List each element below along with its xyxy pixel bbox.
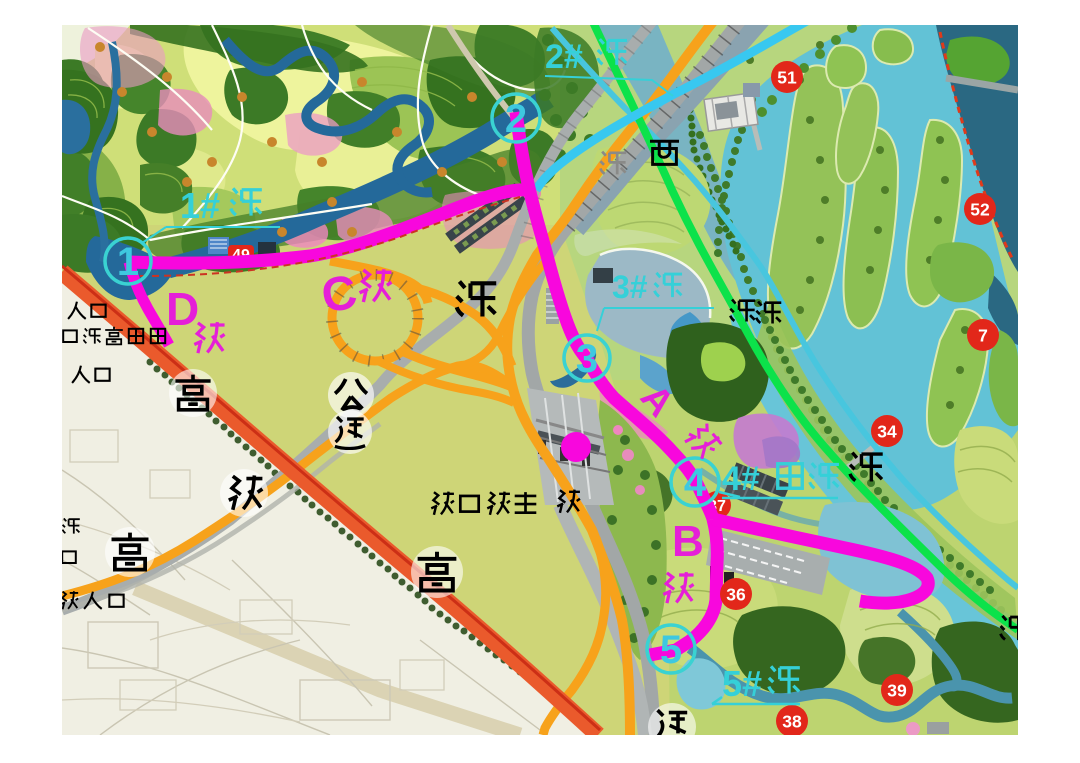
- svg-text:2: 2: [505, 97, 527, 141]
- svg-text:3#: 3#: [612, 269, 648, 305]
- svg-text:4: 4: [684, 461, 707, 505]
- svg-text:4#: 4#: [722, 460, 760, 498]
- svg-text:2#: 2#: [545, 38, 583, 76]
- svg-text:3: 3: [576, 337, 598, 381]
- svg-text:B: B: [672, 517, 704, 566]
- svg-text:52: 52: [970, 200, 990, 220]
- svg-text:7: 7: [978, 326, 988, 346]
- svg-text:D: D: [166, 283, 199, 335]
- svg-text:38: 38: [782, 712, 802, 732]
- svg-text:34: 34: [877, 422, 897, 442]
- svg-text:36: 36: [726, 585, 746, 605]
- svg-text:1: 1: [117, 240, 139, 284]
- svg-text:5: 5: [660, 628, 682, 672]
- svg-text:1#: 1#: [180, 185, 220, 226]
- svg-text:39: 39: [887, 681, 907, 701]
- svg-text:5#: 5#: [722, 663, 762, 704]
- svg-text:51: 51: [777, 68, 797, 88]
